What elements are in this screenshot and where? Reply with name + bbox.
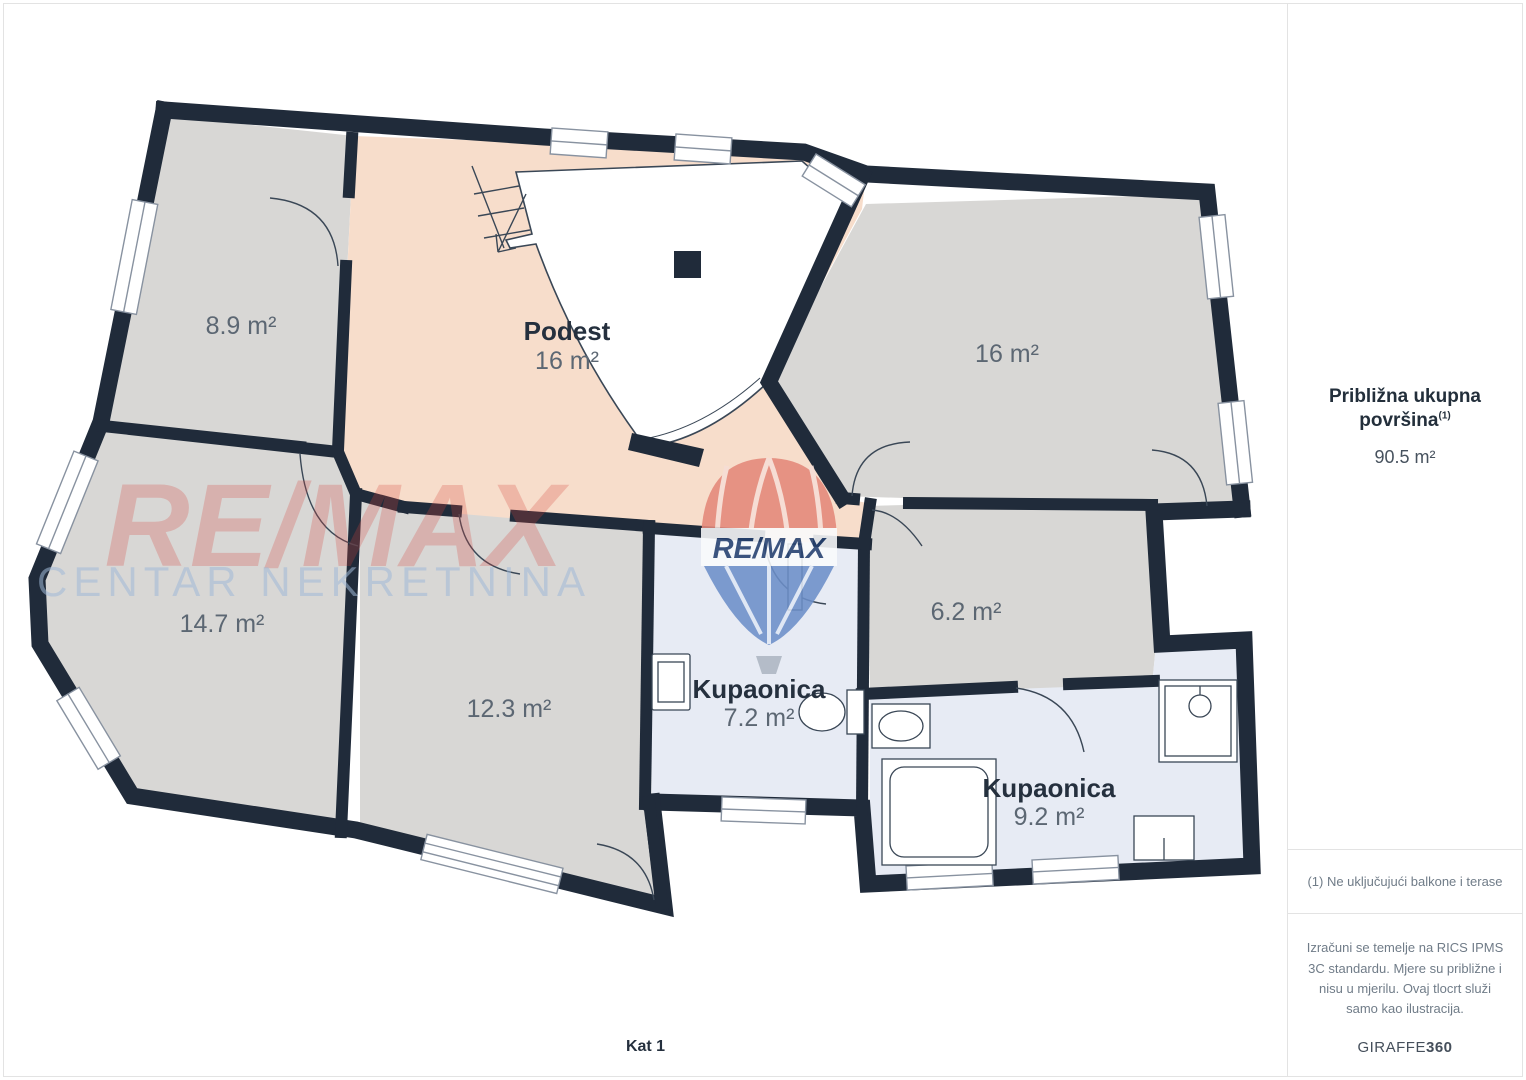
floor-title: Kat 1 (4, 1038, 1287, 1056)
window (906, 861, 993, 889)
toilet-icon (847, 690, 864, 734)
total-area-value: 90.5 m² (1374, 447, 1435, 468)
room-label-podest: Podest (524, 316, 611, 346)
room-label-14-7: 14.7 m² (180, 610, 265, 638)
room-label-kupaonica-1: Kupaonica (693, 674, 826, 704)
sidebar-footnote: (1) Ne uključujući balkone i terase (1288, 849, 1522, 913)
floor-plan-area: RE/MAX CENTAR NEKRETNINA RE/MAX 8.9 m² (4, 4, 1287, 1076)
page: RE/MAX CENTAR NEKRETNINA RE/MAX 8.9 m² (0, 0, 1526, 1080)
room-label-6-2: 6.2 m² (931, 598, 1002, 626)
window (721, 797, 806, 824)
window (674, 134, 732, 164)
room-label-kupaonica-2: Kupaonica (983, 773, 1116, 803)
sidebar-disclaimer-section: Izračuni se temelje na RICS IPMS 3C stan… (1288, 913, 1522, 1076)
watermark-secondary-text: CENTAR NEKRETNINA (37, 558, 591, 605)
floor-plan-svg: RE/MAX CENTAR NEKRETNINA RE/MAX 8.9 m² (4, 4, 1287, 1076)
giraffe360-logo: GIRAFFE360 (1304, 1039, 1506, 1056)
room-label-kupaonica-1-area: 7.2 m² (724, 704, 795, 732)
window (550, 128, 608, 158)
room-label-8-9: 8.9 m² (206, 312, 277, 340)
giraffe360-logo-suffix: 360 (1426, 1039, 1453, 1056)
total-area-footnote-marker: (1) (1438, 411, 1450, 422)
total-area-label: Približna ukupna površina(1) (1302, 385, 1508, 433)
room-polygon-6-2 (866, 499, 1156, 694)
sidebar: Približna ukupna površina(1) 90.5 m² (1)… (1287, 4, 1522, 1076)
room-label-12-3: 12.3 m² (467, 695, 552, 723)
total-area-label-text: Približna ukupna površina (1329, 386, 1481, 431)
room-label-16: 16 m² (975, 340, 1039, 368)
pillar (674, 251, 701, 278)
balloon-label: RE/MAX (713, 533, 827, 565)
giraffe360-logo-text: GIRAFFE (1357, 1039, 1426, 1056)
window (1032, 855, 1119, 883)
room-label-kupaonica-2-area: 9.2 m² (1014, 803, 1085, 831)
sidebar-total-area-section: Približna ukupna površina(1) 90.5 m² (1288, 4, 1522, 849)
disclaimer-text: Izračuni se temelje na RICS IPMS 3C stan… (1304, 938, 1506, 1019)
room-label-podest-area: 16 m² (535, 347, 599, 375)
content-frame: RE/MAX CENTAR NEKRETNINA RE/MAX 8.9 m² (3, 3, 1523, 1077)
